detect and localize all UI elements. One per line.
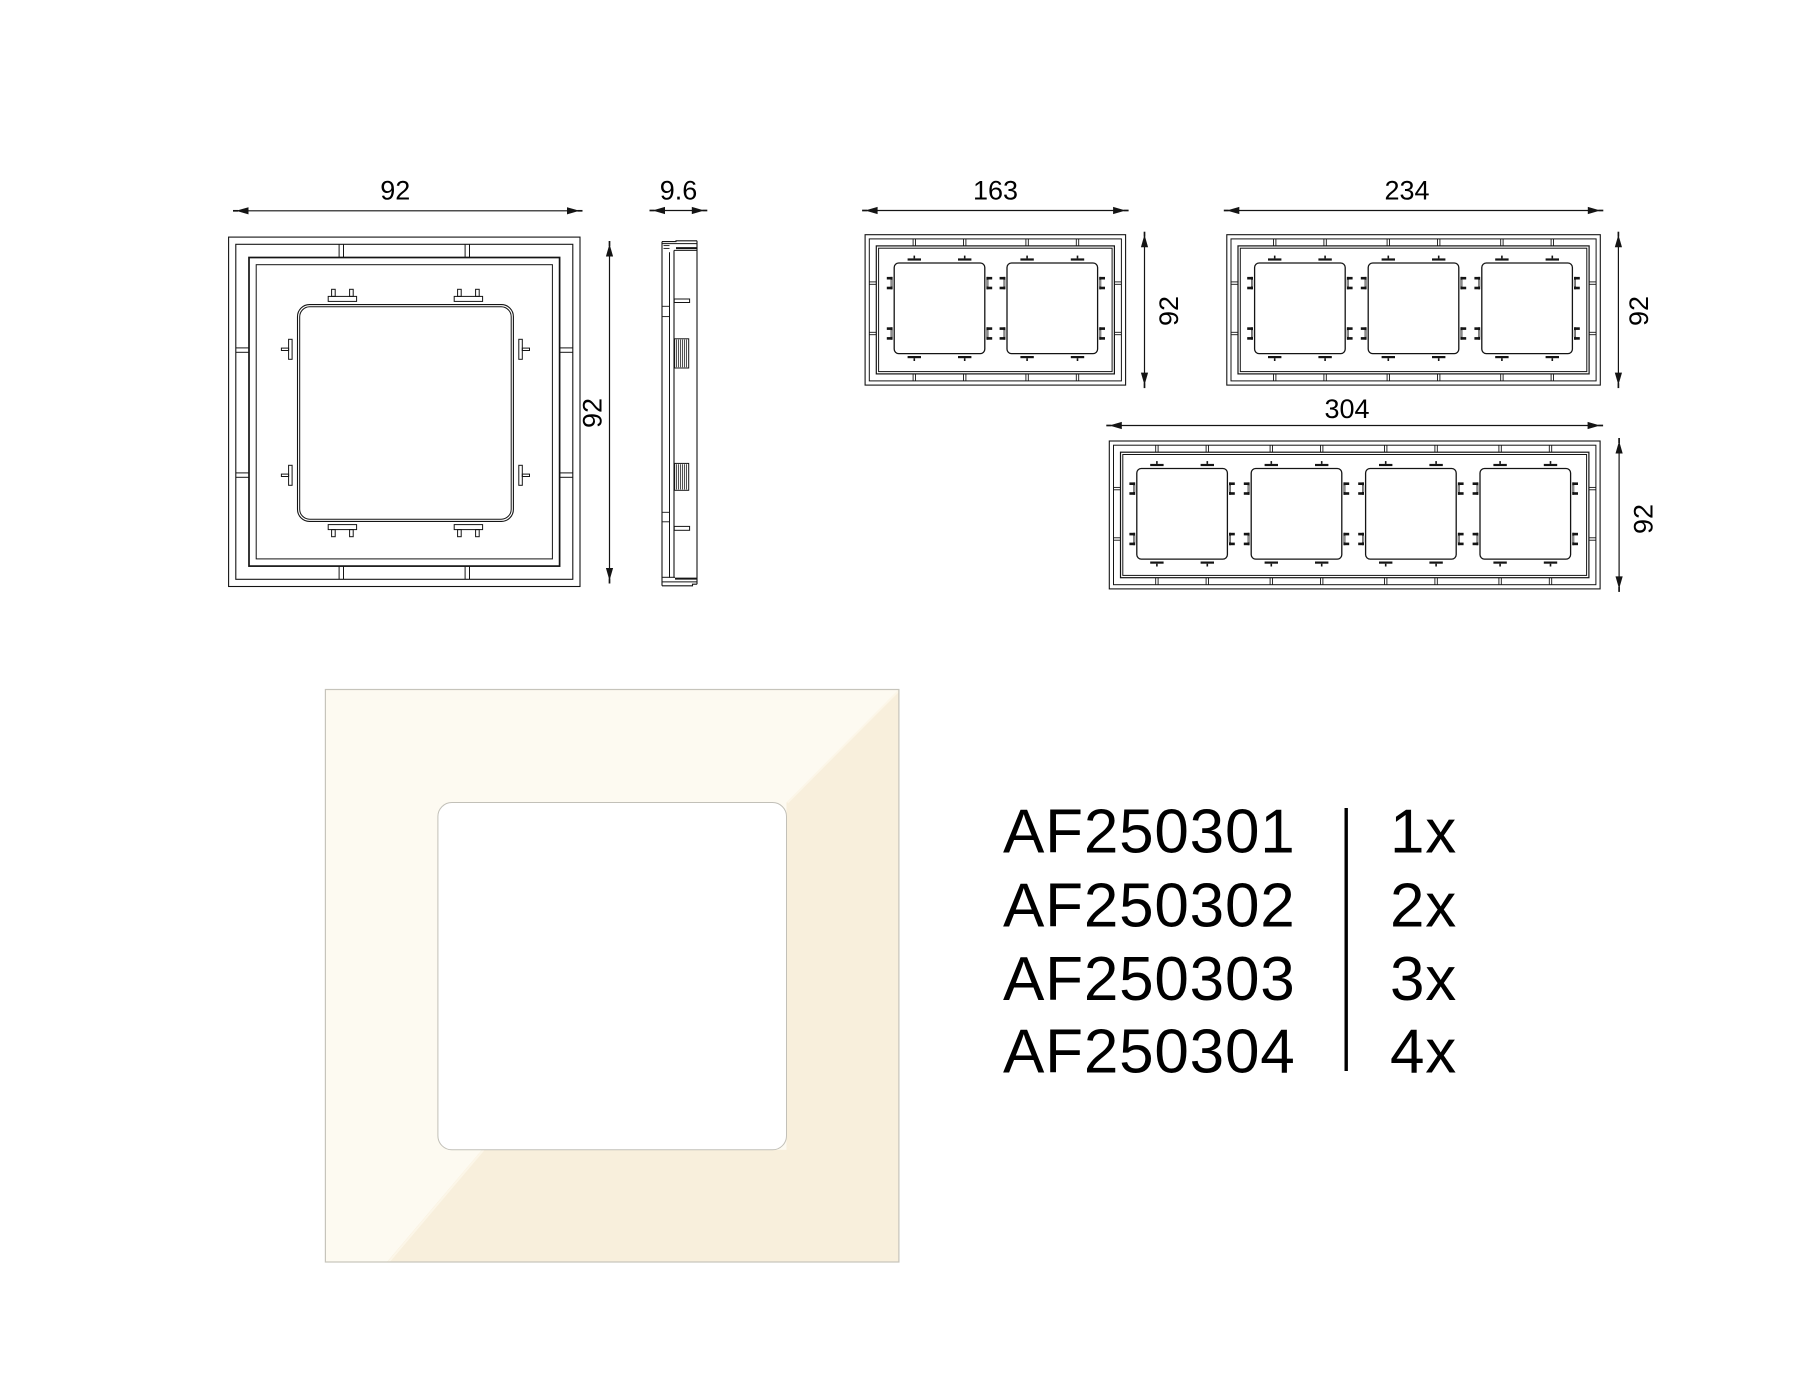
svg-text:92: 92 [578, 398, 608, 428]
svg-text:9.6: 9.6 [660, 176, 698, 206]
svg-text:304: 304 [1324, 394, 1369, 424]
svg-text:AF250304: AF250304 [1003, 1018, 1296, 1087]
svg-text:AF250303: AF250303 [1003, 945, 1296, 1014]
svg-text:2x: 2x [1390, 872, 1457, 941]
svg-text:AF250302: AF250302 [1003, 872, 1296, 941]
svg-text:92: 92 [1624, 296, 1654, 326]
svg-text:163: 163 [973, 176, 1018, 206]
svg-text:92: 92 [1154, 296, 1184, 326]
svg-text:3x: 3x [1390, 945, 1457, 1014]
svg-text:AF250301: AF250301 [1003, 798, 1296, 867]
svg-text:92: 92 [1629, 504, 1659, 534]
svg-text:234: 234 [1384, 176, 1429, 206]
svg-text:92: 92 [380, 176, 410, 206]
svg-text:1x: 1x [1390, 798, 1457, 867]
svg-text:4x: 4x [1390, 1018, 1457, 1087]
